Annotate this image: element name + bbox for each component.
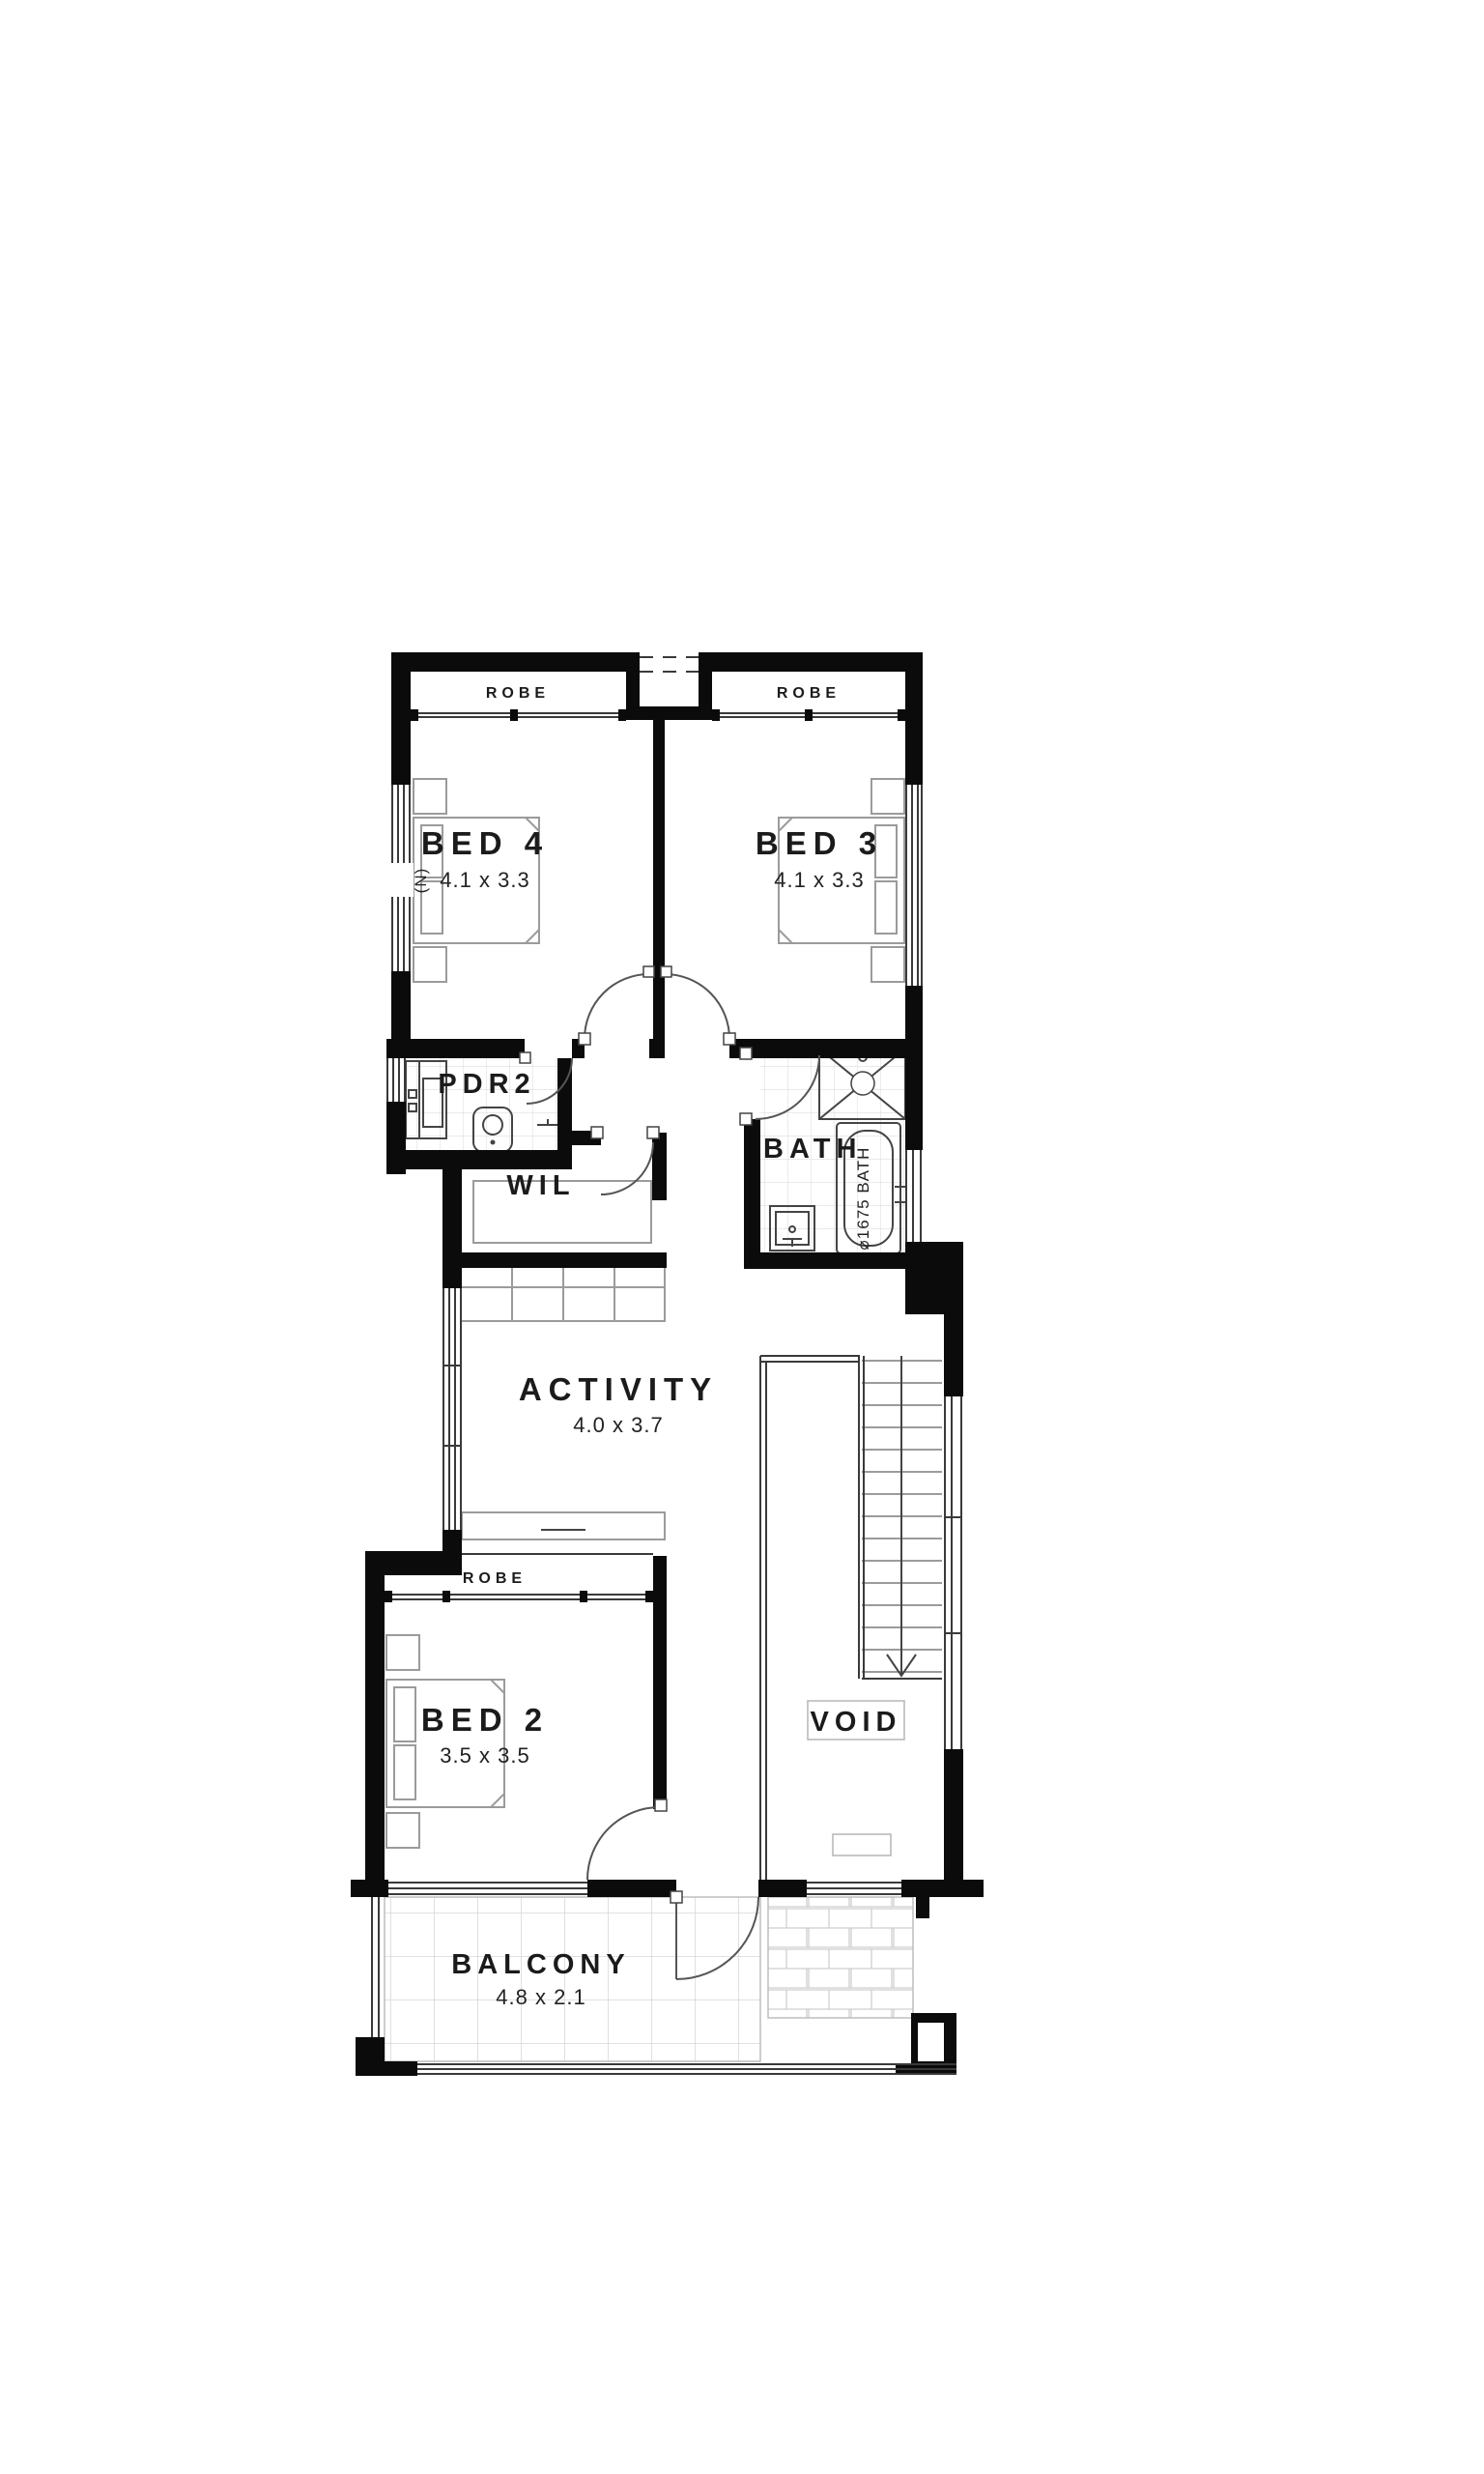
walls (351, 652, 984, 2076)
bed2-furniture (386, 1635, 504, 1848)
activity-desk (462, 1512, 665, 1539)
bed2-door-arc (587, 1807, 660, 1880)
labels: (N) ROBE ROBE BED 4 4.1 x 3.3 BED 3 4.1 … (388, 685, 901, 2009)
bed2-balcony-window (388, 1883, 587, 1894)
robe-label-bed3: ROBE (777, 685, 841, 702)
bed4-door-arc (585, 974, 649, 1039)
activity-window (443, 1288, 461, 1530)
room-label-bed2: BED 2 (421, 1702, 549, 1738)
bed3-window (906, 785, 922, 986)
robe-label-bed2: ROBE (463, 1570, 527, 1587)
void-balcony-window (807, 1883, 901, 1894)
room-dims-bed3: 4.1 x 3.3 (774, 868, 864, 892)
void-lower-hint (833, 1834, 891, 1855)
stair-window (945, 1396, 961, 1749)
room-dims-bed2: 3.5 x 3.5 (440, 1743, 529, 1768)
room-label-bath: BATH (763, 1134, 862, 1165)
bath-tub-label: ⌀1675 BATH (854, 1147, 872, 1251)
room-dims-bed4: 4.1 x 3.3 (440, 868, 529, 892)
activity-cabinets (461, 1264, 665, 1321)
wil-door-arc (601, 1142, 653, 1194)
bed3-door-arc (665, 974, 729, 1039)
room-label-void: VOID (811, 1707, 902, 1738)
north-marker: (N) (412, 868, 430, 894)
room-label-bed3: BED 3 (756, 825, 883, 861)
pdr2-window (387, 1058, 405, 1102)
room-label-wil: WIL (506, 1170, 575, 1201)
niche-dashed-lines (640, 657, 699, 672)
floor-plan-drawing: (N) ROBE ROBE BED 4 4.1 x 3.3 BED 3 4.1 … (0, 0, 1484, 2474)
robe-label-bed4: ROBE (486, 685, 550, 702)
bath-window (906, 1150, 921, 1242)
fixtures (386, 779, 906, 1855)
roof-terrace-bricks (768, 1897, 913, 2018)
floor-tiles (385, 1058, 913, 2061)
floor-plan-page: (N) ROBE ROBE BED 4 4.1 x 3.3 BED 3 4.1 … (0, 0, 1484, 2474)
robe4-front (411, 713, 626, 717)
staircase (859, 1356, 942, 1679)
room-label-bed4: BED 4 (421, 825, 549, 861)
room-label-balcony: BALCONY (451, 1949, 630, 1980)
room-dims-activity: 4.0 x 3.7 (573, 1413, 663, 1437)
void-railing (760, 1356, 860, 1880)
room-dims-balcony: 4.8 x 2.1 (496, 1985, 585, 2009)
room-label-activity: ACTIVITY (519, 1371, 718, 1407)
room-label-pdr2: PDR2 (438, 1069, 535, 1100)
